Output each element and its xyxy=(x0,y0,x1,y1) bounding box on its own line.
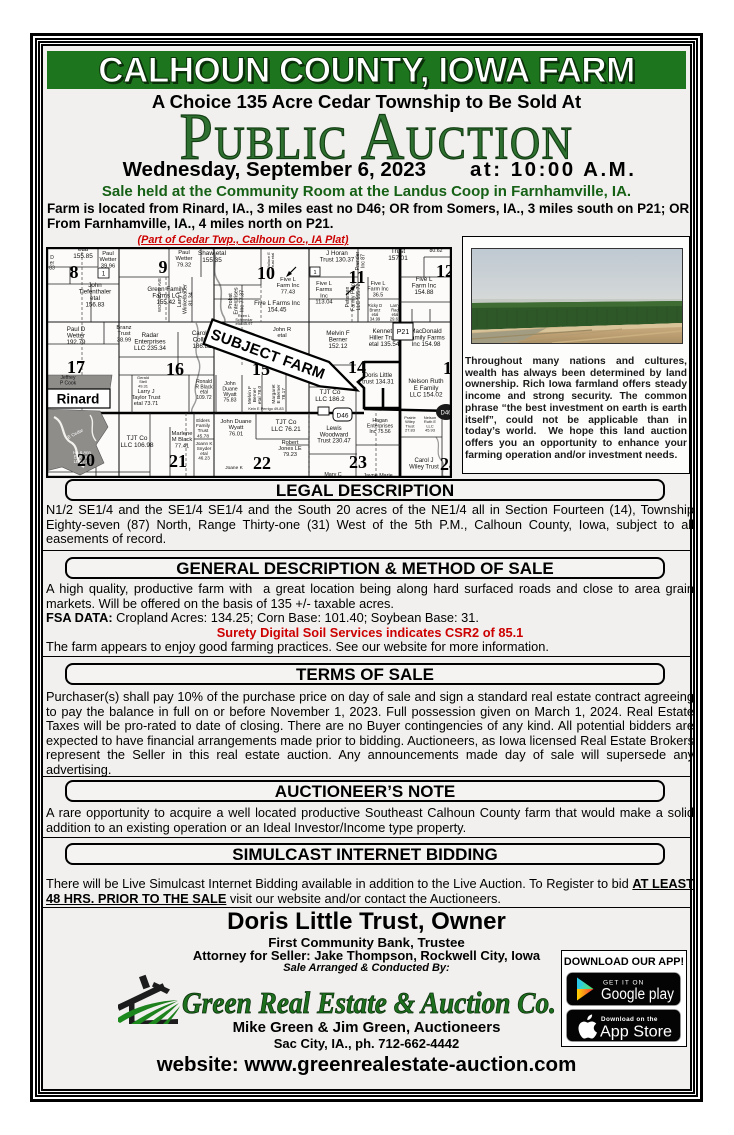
svg-text:12: 12 xyxy=(436,261,452,281)
svg-text:P21: P21 xyxy=(397,329,410,336)
svg-text:Doris Littletrust 134.31: Doris Littletrust 134.31 xyxy=(362,373,394,385)
svg-text:Ricky DBranzetal34.99: Ricky DBranzetal34.99 xyxy=(368,303,382,321)
svg-text:22: 22 xyxy=(253,453,271,473)
svg-text:D46: D46 xyxy=(337,413,349,420)
svg-text:EldersFamilyTrust45.78: EldersFamilyTrust45.78 xyxy=(196,418,211,439)
svg-text:WOODBURY AVE: WOODBURY AVE xyxy=(157,278,162,312)
svg-text:Google play: Google play xyxy=(601,986,674,1003)
svg-text:Rinard: Rinard xyxy=(57,392,100,407)
svg-text:17: 17 xyxy=(67,357,85,377)
svg-text:Joane K: Joane K xyxy=(225,465,243,471)
svg-text:16: 16 xyxy=(166,359,184,379)
svg-text:1: 1 xyxy=(313,270,316,276)
svg-text:JohnDuaneWyatt75.83: JohnDuaneWyatt75.83 xyxy=(222,381,237,404)
svg-text:11: 11 xyxy=(348,267,365,287)
svg-text:BranzTrust38.99: BranzTrust38.99 xyxy=(116,325,131,343)
svg-text:20: 20 xyxy=(77,450,95,470)
svg-text:Melvin FBerneretal 78.0: Melvin FBerneretal 78.0 xyxy=(247,385,263,404)
svg-text:Paul DWetter192.79: Paul DWetter192.79 xyxy=(67,326,86,346)
svg-text:RonaldR Blacketal109.72: RonaldR Blacketal109.72 xyxy=(195,379,213,401)
svg-text:Green Real Estate & Auction Co: Green Real Estate & Auction Co. xyxy=(182,985,556,1020)
svg-text:NelsonRuth ELLC45.93: NelsonRuth ELLC45.93 xyxy=(424,415,437,433)
svg-text:Download on the: Download on the xyxy=(601,1016,658,1023)
svg-text:Kein E Perrigo 49-83: Kein E Perrigo 49-83 xyxy=(248,407,283,411)
svg-text:PrairieWileyTrust27.83: PrairieWileyTrust27.83 xyxy=(404,415,416,433)
svg-text:23: 23 xyxy=(349,452,367,472)
svg-text:9: 9 xyxy=(159,257,168,277)
svg-text:10: 10 xyxy=(257,263,275,283)
svg-text:App Store: App Store xyxy=(600,1024,672,1041)
svg-text:21: 21 xyxy=(169,451,187,471)
svg-text:Melvin FBerner152.12: Melvin FBerner152.12 xyxy=(326,330,350,350)
svg-text:8: 8 xyxy=(70,262,79,282)
